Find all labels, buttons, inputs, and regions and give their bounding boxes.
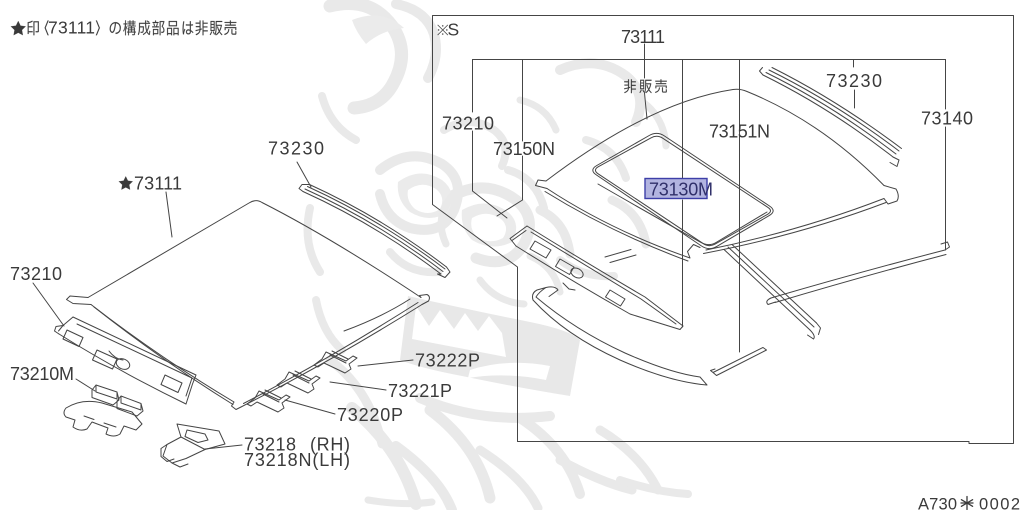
svg-text:73111: 73111 [48,18,95,38]
svg-text:0002: 0002 [979,496,1020,510]
svg-text:S: S [448,20,460,40]
svg-text:73220P: 73220P [337,405,403,425]
svg-text:73210: 73210 [442,114,494,134]
svg-text:73140: 73140 [921,109,973,129]
svg-text:73210M: 73210M [10,364,74,384]
svg-text:73210: 73210 [10,264,62,284]
svg-text:73130M: 73130M [649,180,713,200]
svg-text:73150N: 73150N [493,139,555,159]
svg-text:73230: 73230 [268,139,324,159]
svg-text:73111: 73111 [134,174,182,194]
svg-text:73111: 73111 [621,27,665,47]
svg-text:73221P: 73221P [388,381,452,401]
svg-text:A730: A730 [918,496,957,510]
svg-text:73218N(LH): 73218N(LH) [244,450,350,470]
svg-text:73230: 73230 [826,71,882,91]
svg-text:73151N: 73151N [709,122,770,142]
svg-text:73222P: 73222P [415,351,480,371]
